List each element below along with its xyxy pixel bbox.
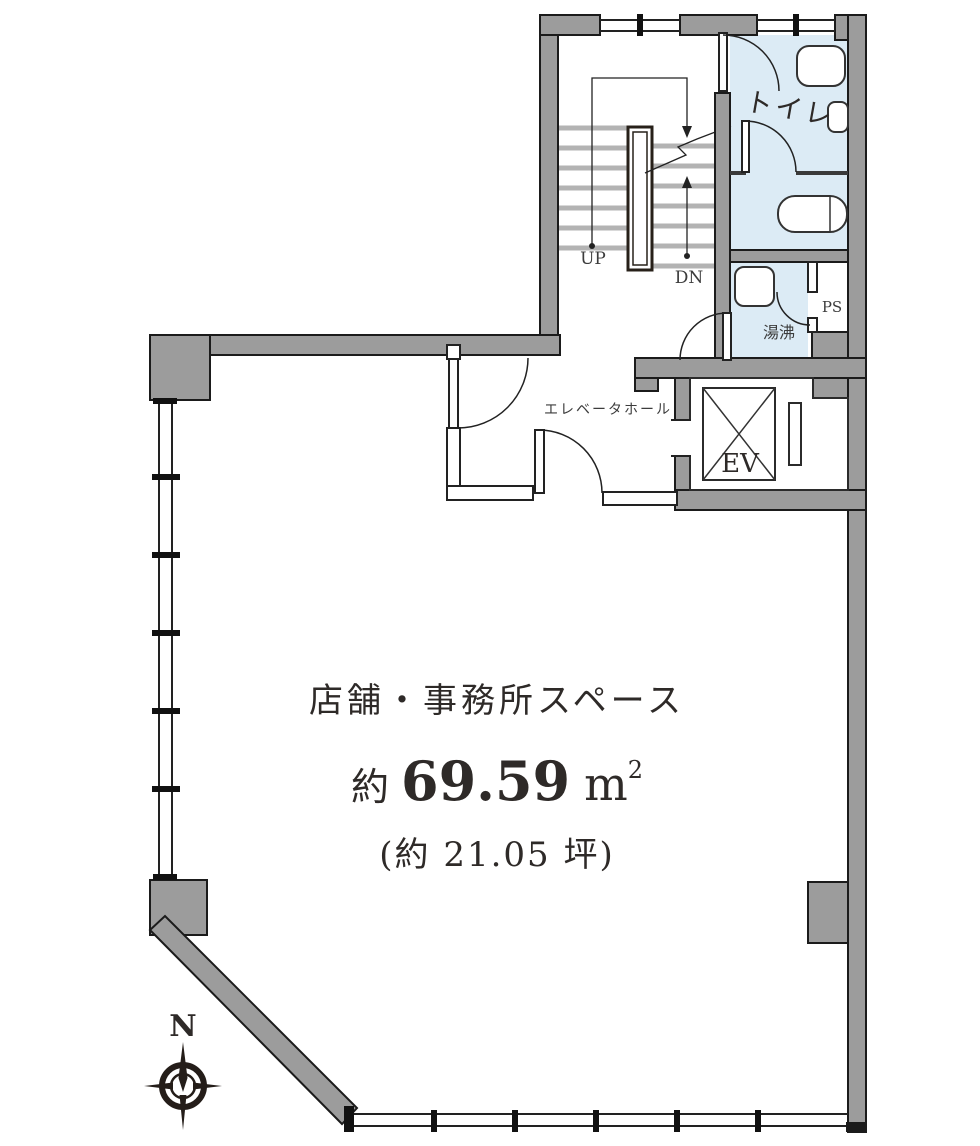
elevator-top-wall-foot [635, 378, 658, 391]
hall-left-door-leaf [449, 359, 458, 428]
elevator-hall-label: エレベータホール [544, 402, 672, 418]
staircase: UP DN [558, 78, 731, 288]
north-label: N [169, 1009, 196, 1044]
ps-label: PS [822, 298, 842, 316]
area-value: 69.59 [401, 749, 570, 813]
space-name-label: 店舗・事務所スペース [309, 681, 685, 721]
toilet-inner-door-leaf [742, 121, 749, 172]
kitchenette-wall-upper-jamb [808, 262, 817, 292]
toilet-entry-door-leaf [719, 33, 727, 91]
kitchenette-label: 湯沸 [763, 323, 795, 342]
floor-plan-drawing: UP DN [0, 0, 980, 1146]
top-window-left [600, 14, 680, 36]
toilet-kitchenette-wall [730, 250, 848, 262]
area-unit: m [584, 757, 628, 811]
up-label: UP [580, 249, 606, 269]
toilet-bowl [778, 196, 847, 232]
space-area-label: 約69.59m2 [351, 749, 643, 813]
compass-south-spike [180, 1095, 187, 1130]
hall-left-door-arc [458, 358, 528, 428]
stair-hall-door-leaf [723, 313, 731, 360]
compass: N [144, 1009, 222, 1130]
top-window-right [757, 14, 835, 36]
compass-west-spike [144, 1083, 173, 1090]
elevator-bottom-wall [675, 490, 866, 510]
hall-bottom-wall-left [447, 486, 533, 500]
kitchenette-sink [735, 267, 774, 306]
ev-label: EV [721, 449, 760, 479]
area-prefix: 約 [351, 765, 389, 809]
main-space-text: 店舗・事務所スペース 約69.59m2 (約 21.05 坪) [309, 681, 685, 875]
space-tsubo-label: (約 21.05 坪) [379, 835, 614, 875]
hall-left-jamb [447, 345, 460, 359]
elevator-counterweight [789, 403, 801, 465]
left-window [152, 398, 180, 880]
top-wall-left-corner [540, 15, 600, 35]
toilet-vanity-sink [797, 46, 845, 86]
right-wall [848, 15, 866, 1132]
hall-bottom-door-arc [539, 430, 602, 493]
elevator-top-wall [635, 358, 866, 378]
stair-center-rail [628, 127, 652, 270]
right-wall-pillar [808, 882, 848, 943]
main-top-corner-pillar [150, 335, 210, 400]
elevator-door-opening [671, 420, 691, 456]
floor-plan: UP DN [0, 0, 980, 1146]
hall-bottom-door-leaf [535, 430, 544, 493]
dn-label: DN [675, 268, 704, 288]
main-top-wall [150, 335, 560, 355]
stair-left-wall [540, 15, 558, 355]
bottom-window [344, 1106, 866, 1132]
toilet-divider-right [796, 171, 848, 175]
compass-east-spike [193, 1083, 222, 1090]
hall-bottom-wall-right [603, 492, 677, 505]
area-unit-exponent: 2 [628, 756, 643, 784]
